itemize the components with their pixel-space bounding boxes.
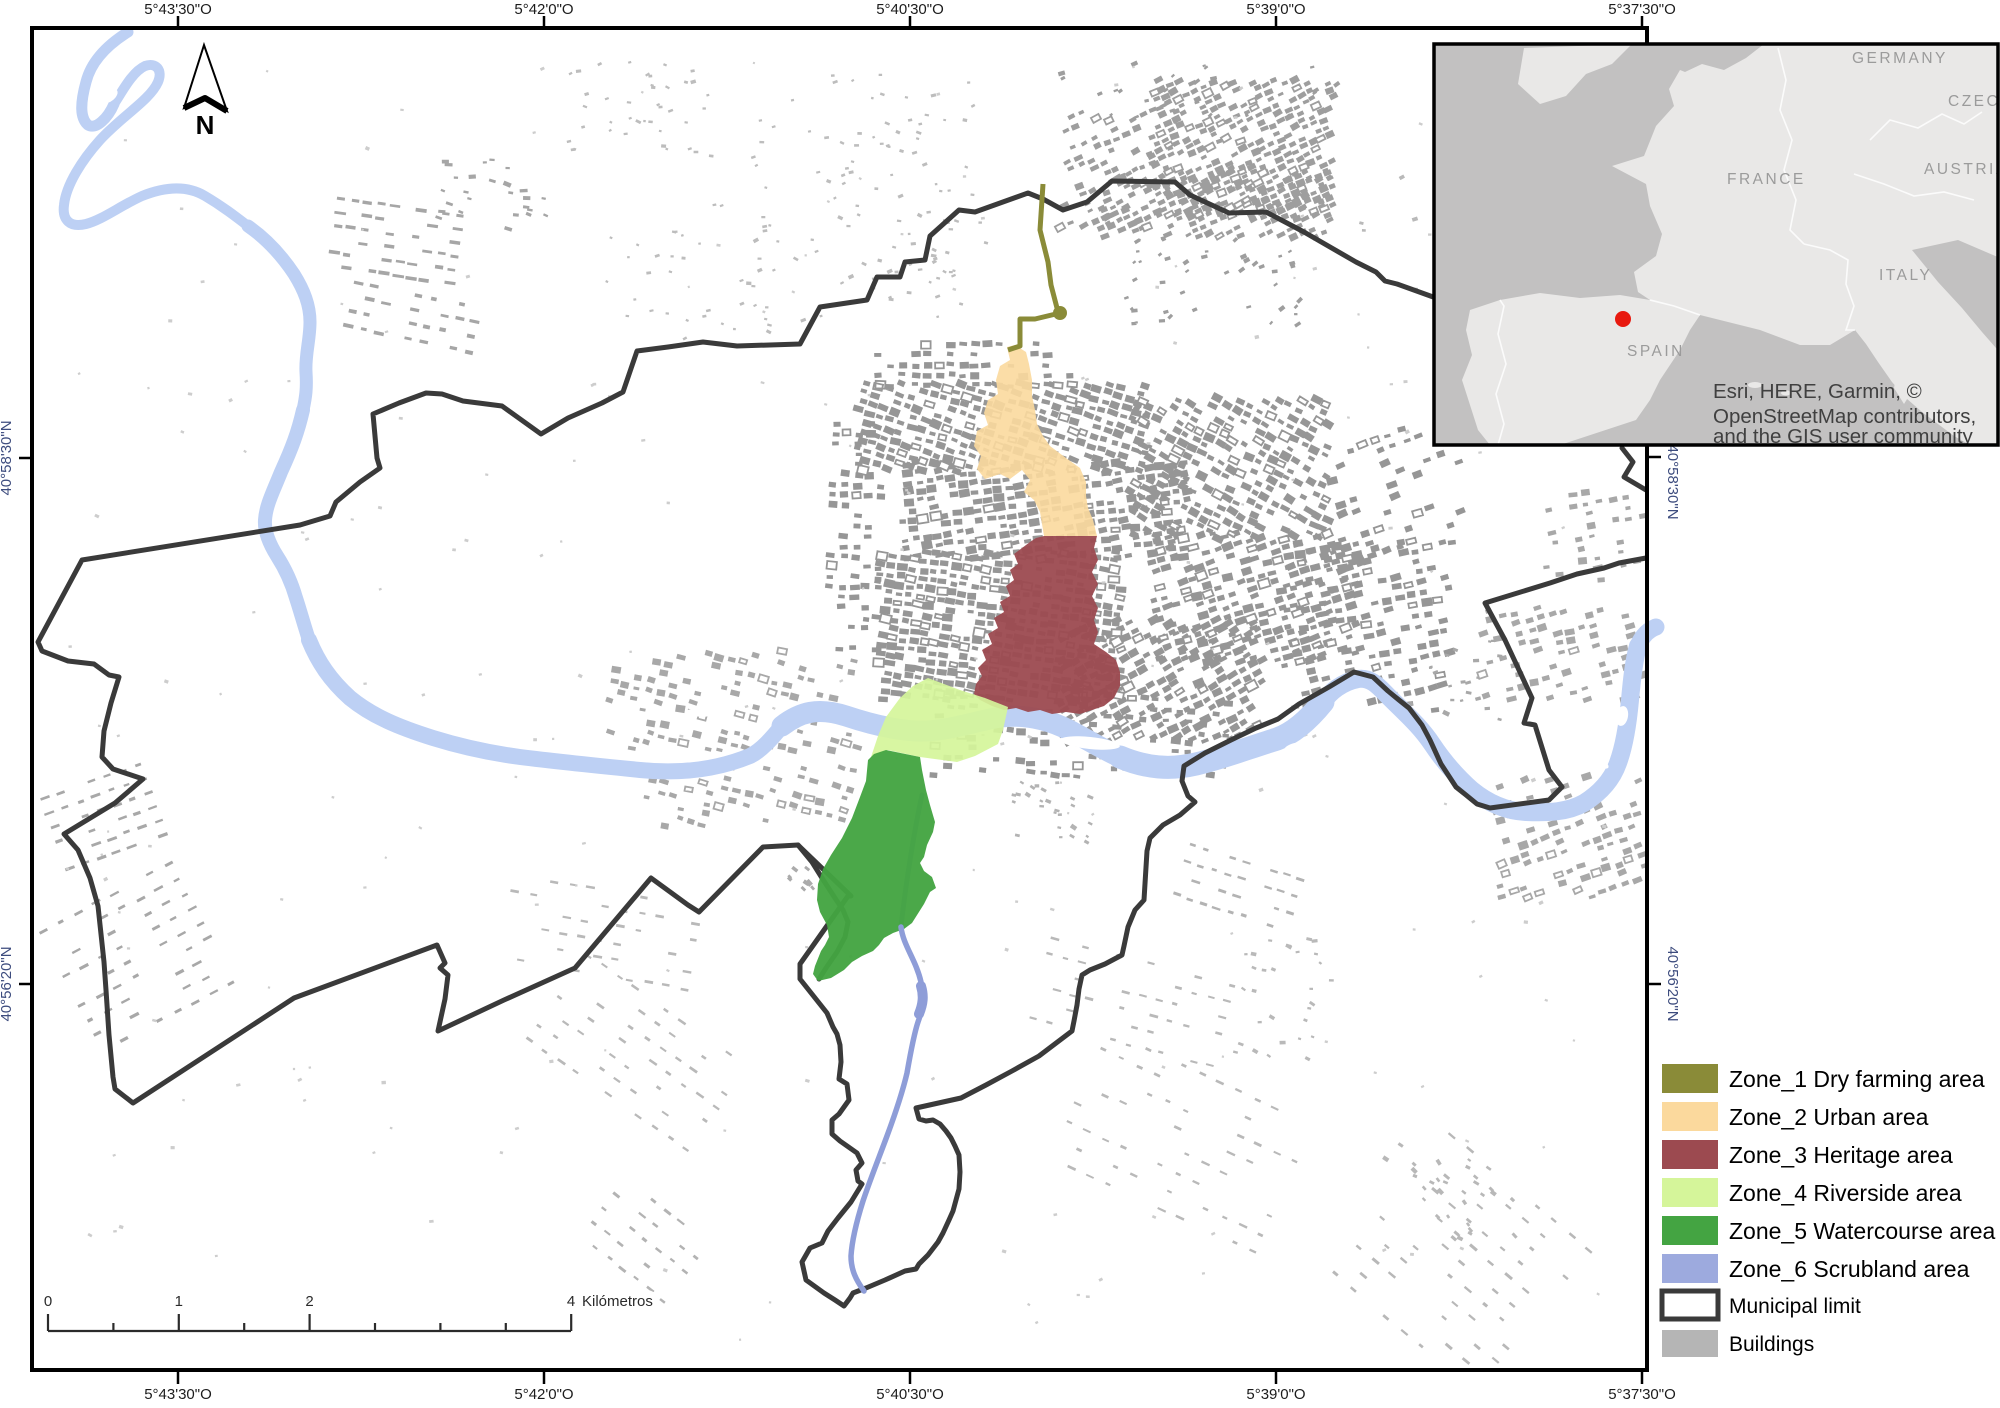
svg-text:Zone_6 Scrubland area: Zone_6 Scrubland area xyxy=(1729,1256,1970,1282)
svg-text:5°39'0"O: 5°39'0"O xyxy=(1246,1386,1305,1403)
svg-text:40°56'20"N: 40°56'20"N xyxy=(0,946,15,1021)
svg-text:5°43'30"O: 5°43'30"O xyxy=(144,1,212,18)
svg-text:5°37'30"O: 5°37'30"O xyxy=(1608,1386,1676,1403)
svg-text:CZEC: CZEC xyxy=(1948,93,2000,110)
svg-text:0: 0 xyxy=(44,1293,52,1310)
svg-text:ITALY: ITALY xyxy=(1879,267,1932,284)
svg-text:40°58'30"N: 40°58'30"N xyxy=(1664,444,1681,519)
svg-text:Zone_2 Urban area: Zone_2 Urban area xyxy=(1729,1104,1929,1130)
svg-text:Zone_3 Heritage area: Zone_3 Heritage area xyxy=(1729,1142,1953,1168)
svg-text:2: 2 xyxy=(305,1293,313,1310)
svg-text:Esri, HERE, Garmin, ©: Esri, HERE, Garmin, © xyxy=(1713,380,1922,403)
svg-text:5°40'30"O: 5°40'30"O xyxy=(876,1386,944,1403)
svg-text:1: 1 xyxy=(175,1293,183,1310)
svg-text:40°58'30"N: 40°58'30"N xyxy=(0,420,15,495)
svg-text:Zone_5 Watercourse area: Zone_5 Watercourse area xyxy=(1729,1218,1996,1244)
svg-text:5°42'0"O: 5°42'0"O xyxy=(514,1,573,18)
svg-text:5°40'30"O: 5°40'30"O xyxy=(876,1,944,18)
svg-text:Kilómetros: Kilómetros xyxy=(582,1293,653,1310)
svg-text:5°43'30"O: 5°43'30"O xyxy=(144,1386,212,1403)
svg-text:Buildings: Buildings xyxy=(1729,1333,1814,1356)
svg-text:Municipal limit: Municipal limit xyxy=(1729,1295,1861,1318)
svg-text:N: N xyxy=(196,110,215,140)
svg-text:5°37'30"O: 5°37'30"O xyxy=(1608,1,1676,18)
svg-text:GERMANY: GERMANY xyxy=(1852,50,1948,67)
svg-text:Zone_4 Riverside area: Zone_4 Riverside area xyxy=(1729,1180,1962,1206)
svg-text:Zone_1 Dry farming area: Zone_1 Dry farming area xyxy=(1729,1066,1985,1092)
svg-text:4: 4 xyxy=(567,1293,575,1310)
svg-text:40°56'20"N: 40°56'20"N xyxy=(1664,946,1681,1021)
svg-text:5°39'0"O: 5°39'0"O xyxy=(1246,1,1305,18)
svg-text:SPAIN: SPAIN xyxy=(1627,343,1685,360)
svg-text:FRANCE: FRANCE xyxy=(1727,171,1806,188)
svg-text:AUSTRIA: AUSTRIA xyxy=(1924,161,2000,178)
svg-text:5°42'0"O: 5°42'0"O xyxy=(514,1386,573,1403)
